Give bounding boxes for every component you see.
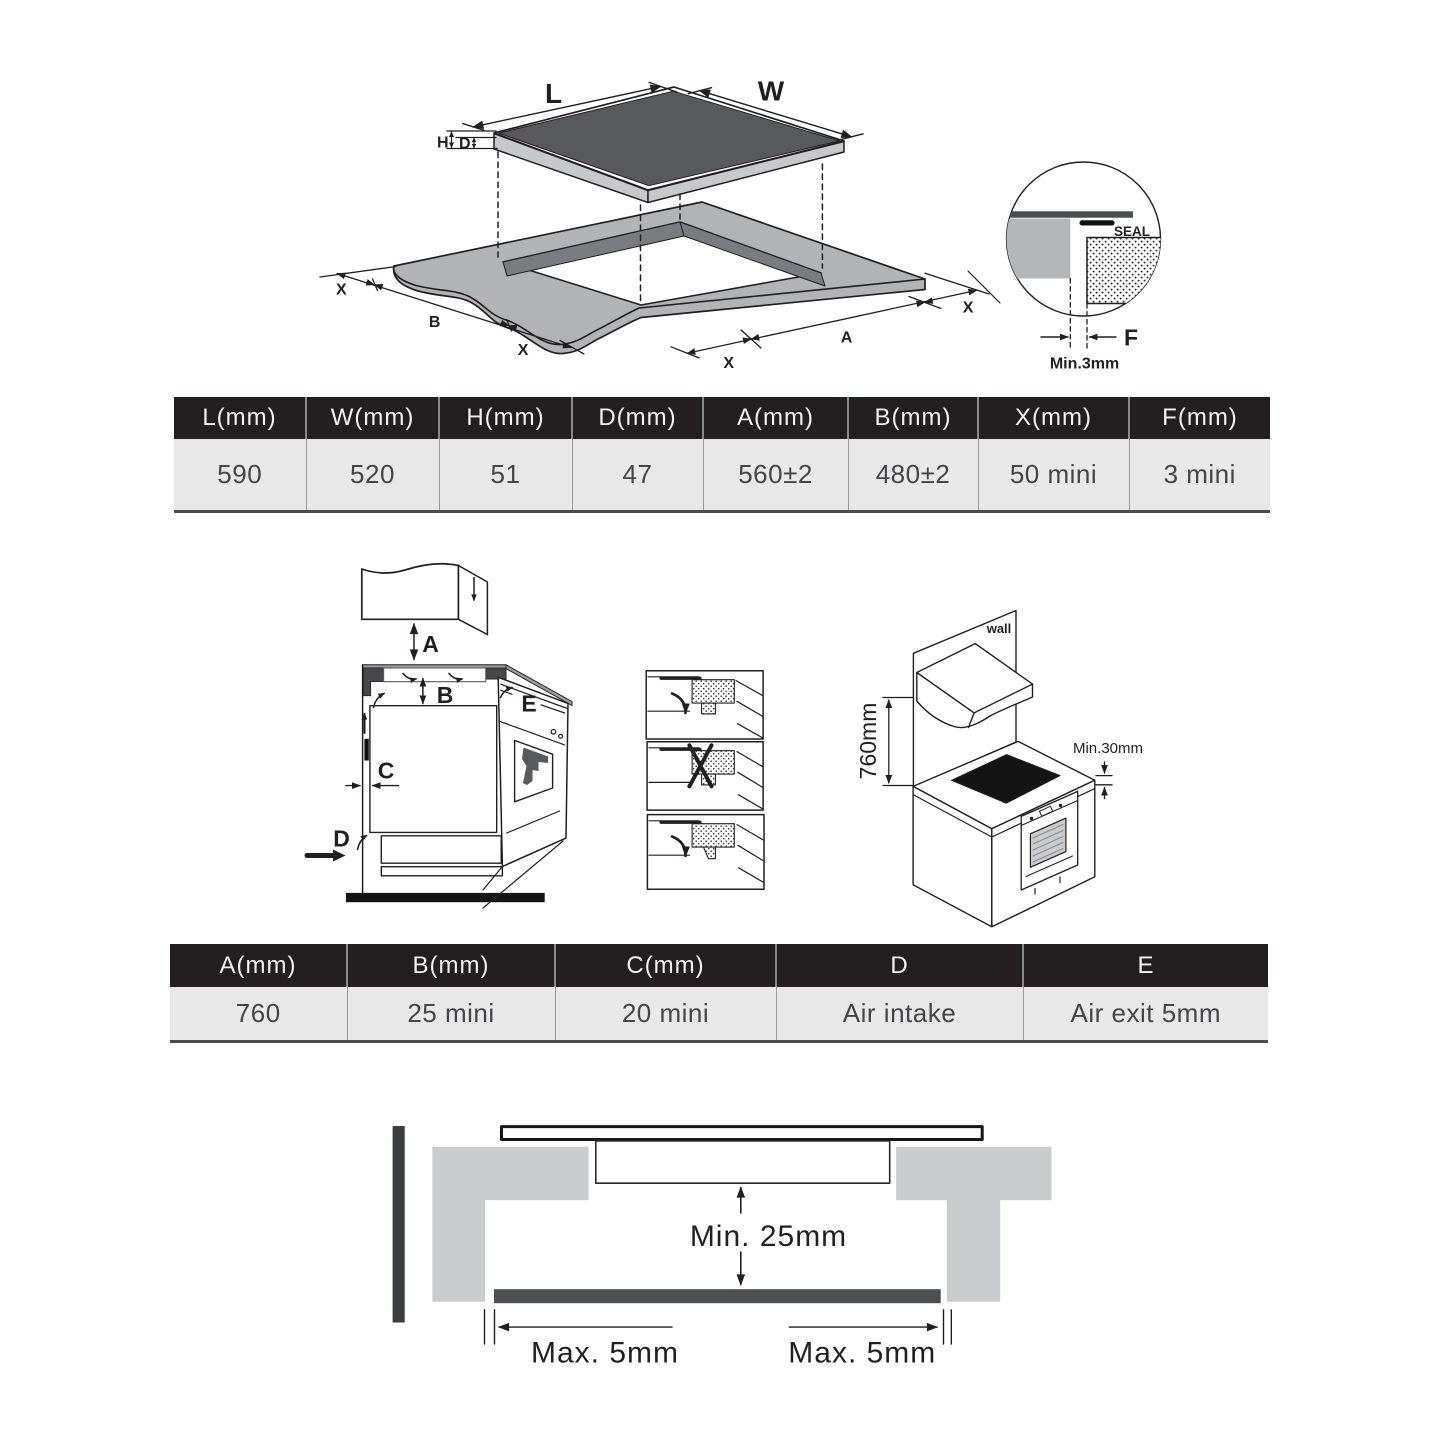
svg-text:Min.30mm: Min.30mm — [1073, 740, 1143, 757]
svg-text:Min. 25mm: Min. 25mm — [690, 1220, 847, 1253]
svg-text:X: X — [336, 282, 347, 299]
svg-text:C: C — [378, 758, 395, 784]
svg-text:F: F — [1124, 325, 1138, 351]
svg-text:Max. 5mm: Max. 5mm — [531, 1337, 679, 1370]
svg-text:W: W — [758, 76, 785, 107]
svg-text:Min.3mm: Min.3mm — [1050, 356, 1119, 373]
svg-text:A: A — [841, 330, 853, 347]
svg-text:B: B — [437, 682, 454, 708]
svg-text:X: X — [963, 300, 974, 317]
svg-text:H: H — [437, 135, 449, 152]
svg-text:X: X — [723, 355, 734, 372]
svg-text:D: D — [459, 135, 471, 152]
svg-text:wall: wall — [986, 621, 1012, 636]
svg-text:760mm: 760mm — [855, 703, 881, 780]
svg-text:Max. 5mm: Max. 5mm — [788, 1337, 936, 1370]
svg-text:B: B — [429, 314, 441, 331]
svg-text:E: E — [521, 691, 536, 717]
svg-text:X: X — [518, 342, 529, 359]
svg-text:L: L — [545, 78, 562, 109]
svg-text:SEAL: SEAL — [1114, 224, 1150, 239]
svg-text:D: D — [333, 826, 350, 852]
svg-text:A: A — [422, 631, 439, 657]
